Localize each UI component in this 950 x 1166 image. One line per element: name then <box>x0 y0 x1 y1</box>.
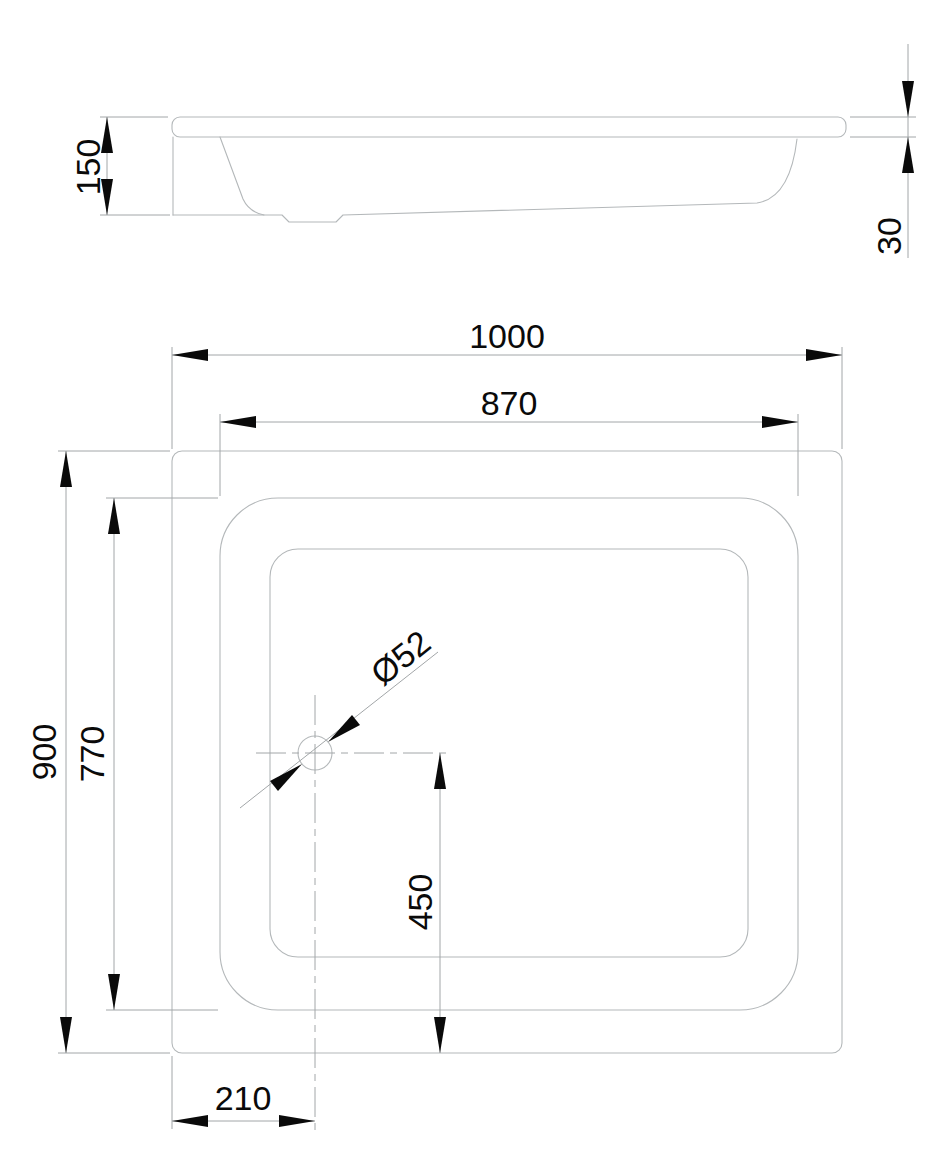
plan-inner-rim-outline <box>220 498 798 1010</box>
side-elevation-view <box>172 117 846 222</box>
arrowhead-left <box>172 349 208 361</box>
technical-drawing-page: 1000 870 900 770 450 210 <box>0 0 950 1166</box>
dim-label-overall-depth: 900 <box>25 724 63 781</box>
arrowhead-bottom <box>60 1017 72 1053</box>
dimension-tray-height: 150 <box>69 117 170 215</box>
arrowhead-right <box>279 1115 315 1127</box>
extension-lines <box>850 117 916 137</box>
arrowhead-lower <box>270 764 302 791</box>
dim-label-drain-from-bottom: 450 <box>401 874 439 931</box>
dim-label-overall-width: 1000 <box>469 317 545 355</box>
dimension-drain-from-bottom: 450 <box>401 753 446 1053</box>
shower-tray-drawing: 1000 870 900 770 450 210 <box>0 0 950 1166</box>
dim-label-tray-height: 150 <box>69 139 107 196</box>
dim-label-inner-depth: 770 <box>73 726 111 783</box>
arrowhead-bottom <box>434 1017 446 1053</box>
arrowhead-top <box>434 753 446 789</box>
arrowhead-bottom <box>108 974 120 1010</box>
arrowhead-left <box>220 416 256 428</box>
arrowhead-top <box>108 498 120 534</box>
dim-label-inner-width: 870 <box>481 384 538 422</box>
side-bottom-profile <box>173 139 797 222</box>
arrowhead-right <box>806 349 842 361</box>
plan-view <box>172 451 842 1131</box>
arrowhead-right <box>762 416 798 428</box>
dimension-inner-depth: 770 <box>73 498 218 1010</box>
dimension-drain-from-left: 210 <box>172 1056 315 1129</box>
arrowhead-top <box>60 451 72 487</box>
extension-lines <box>106 498 218 1010</box>
extension-lines <box>220 414 798 496</box>
plan-outer-flange-outline <box>172 451 842 1053</box>
arrowhead-lower <box>902 137 914 173</box>
side-rim-outline <box>172 117 846 137</box>
dimension-overall-width: 1000 <box>172 317 842 449</box>
side-inner-wall-slope <box>220 137 264 215</box>
dimension-inner-width: 870 <box>220 384 798 496</box>
arrowhead-upper <box>902 81 914 117</box>
dim-label-drain-from-left: 210 <box>215 1079 272 1117</box>
dimension-rim-thickness: 30 <box>850 44 916 258</box>
extension-lines <box>100 117 170 215</box>
arrowhead-left <box>172 1115 208 1127</box>
arrowhead-upper <box>328 715 360 742</box>
dim-label-rim-thickness: 30 <box>870 217 908 255</box>
